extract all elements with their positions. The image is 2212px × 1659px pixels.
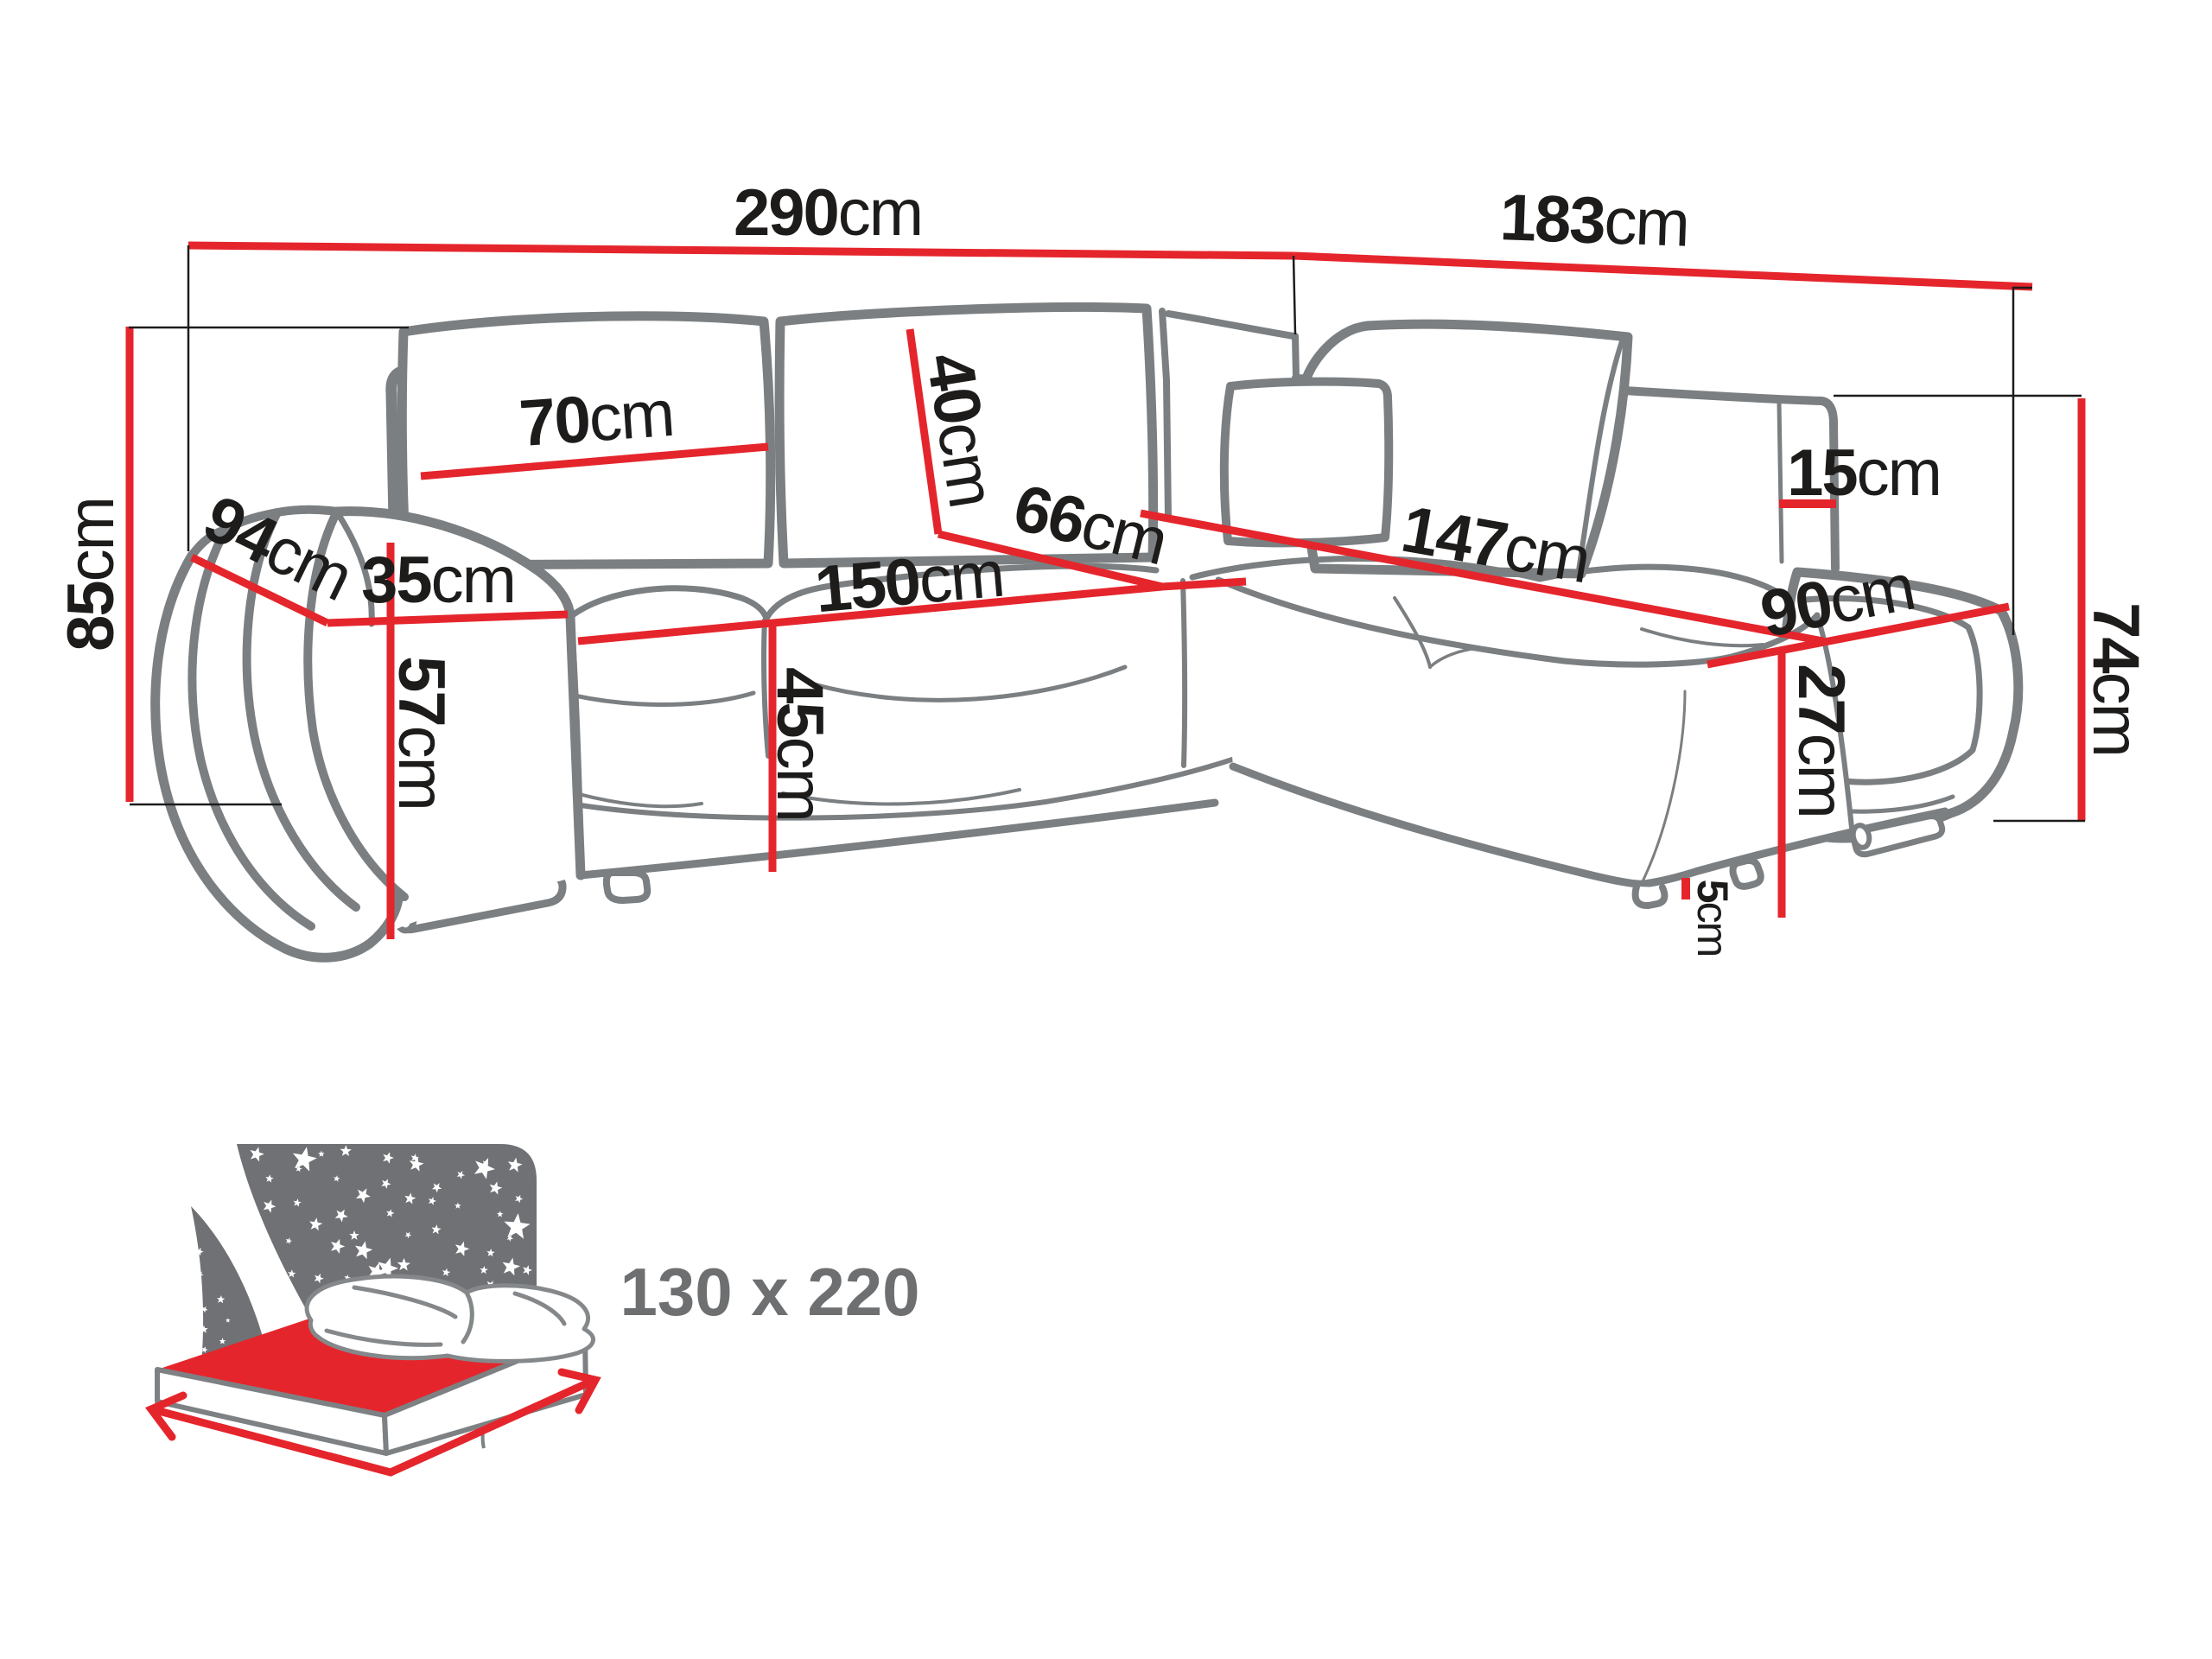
svg-text:57cm: 57cm	[385, 656, 458, 810]
svg-text:27cm: 27cm	[1784, 664, 1858, 817]
svg-text:183cm: 183cm	[1498, 181, 1689, 261]
svg-text:85cm: 85cm	[54, 498, 128, 652]
svg-text:74cm: 74cm	[2079, 602, 2152, 756]
svg-text:290cm: 290cm	[734, 176, 922, 250]
svg-text:5cm: 5cm	[1688, 880, 1737, 956]
svg-text:35cm: 35cm	[361, 543, 515, 617]
svg-text:45cm: 45cm	[763, 667, 836, 821]
svg-text:15cm: 15cm	[1787, 436, 1941, 510]
svg-text:130 x 220: 130 x 220	[620, 1254, 919, 1330]
svg-text:70cm: 70cm	[517, 377, 675, 461]
